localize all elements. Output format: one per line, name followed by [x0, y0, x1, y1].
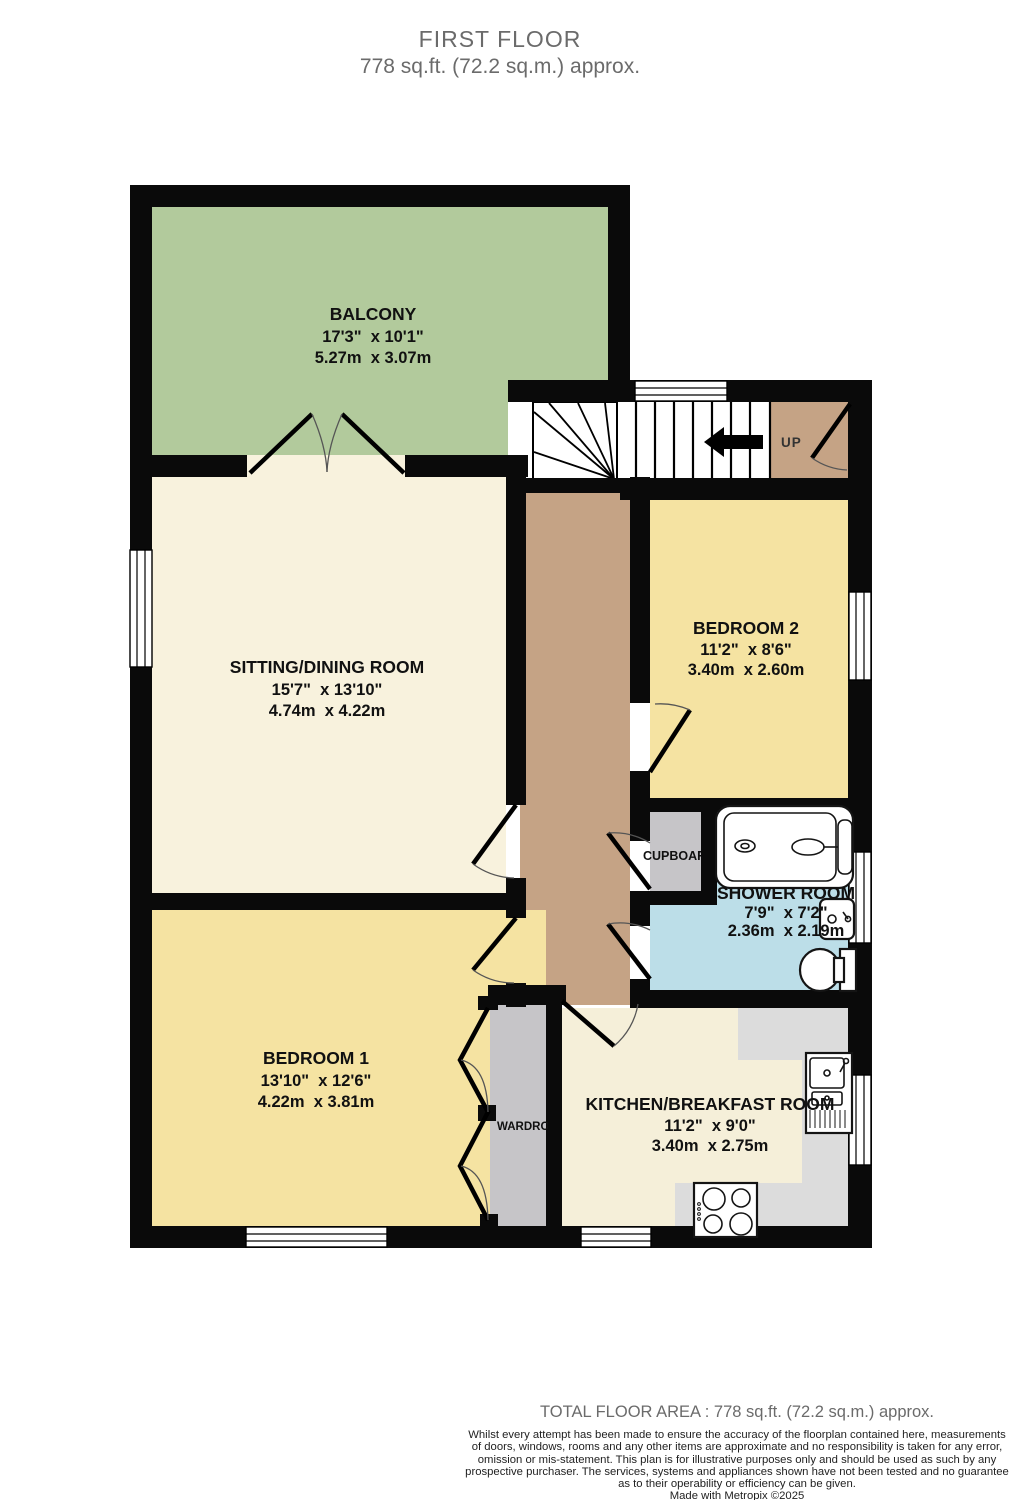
bathtub-icon [716, 806, 853, 888]
page-title: FIRST FLOOR 778 sq.ft. (72.2 sq.m.) appr… [150, 26, 850, 79]
disclaimer-line: omission or mis-statement. This plan is … [437, 1454, 1030, 1466]
window-kitchen-bottom [581, 1227, 651, 1247]
bedroom2-label: BEDROOM 2 [693, 618, 799, 638]
bedroom1-label: BEDROOM 1 [263, 1048, 369, 1068]
cupboard-floor [650, 803, 701, 891]
hob-icon [694, 1183, 757, 1237]
sitting-room-dims-metric: 4.74m x 4.22m [269, 702, 386, 720]
bedroom1-floor [152, 910, 546, 1226]
window-bedroom2-right [849, 592, 871, 680]
kitchen-label: KITCHEN/BREAKFAST ROOM [586, 1094, 835, 1114]
bedroom2-label-group: BEDROOM 2 11'2" x 8'6" 3.40m x 2.60m [688, 618, 805, 679]
footer: TOTAL FLOOR AREA : 778 sq.ft. (72.2 sq.m… [437, 1403, 1030, 1500]
bedroom2-dims-imperial: 11'2" x 8'6" [700, 641, 791, 659]
balcony-label-group: BALCONY 17'3" x 10'1" 5.27m x 3.07m [315, 304, 432, 367]
floorplan-page: FIRST FLOOR 778 sq.ft. (72.2 sq.m.) appr… [0, 0, 1030, 1500]
disclaimer: Whilst every attempt has been made to en… [437, 1429, 1030, 1500]
wardrobe-floor [490, 1003, 546, 1226]
balcony-label: BALCONY [330, 304, 417, 324]
total-floor-area: TOTAL FLOOR AREA : 778 sq.ft. (72.2 sq.m… [437, 1403, 1030, 1422]
bedroom2-dims-metric: 3.40m x 2.60m [688, 661, 805, 679]
room-fills [152, 207, 848, 1226]
balcony-dims-imperial: 17'3" x 10'1" [322, 328, 423, 346]
disclaimer-line: of doors, windows, rooms and any other i… [437, 1441, 1030, 1453]
floorplan-drawing: UP [0, 0, 1030, 1500]
up-label: UP [781, 435, 802, 450]
window-bedroom1-bottom [246, 1227, 387, 1247]
disclaimer-line: Whilst every attempt has been made to en… [437, 1429, 1030, 1441]
toilet-icon [800, 949, 856, 991]
balcony-dims-metric: 5.27m x 3.07m [315, 349, 432, 367]
floor-title: FIRST FLOOR [150, 26, 850, 53]
bedroom1-label-group: BEDROOM 1 13'10" x 12'6" 4.22m x 3.81m [258, 1048, 375, 1111]
disclaimer-line: prospective purchaser. The services, sys… [437, 1466, 1030, 1478]
bedroom1-dims-imperial: 13'10" x 12'6" [261, 1072, 372, 1090]
shower-room-label: SHOWER ROOM [717, 883, 855, 903]
metropix-credit: Made with Metropix ©2025 [437, 1490, 1030, 1500]
kitchen-sink-icon [806, 1053, 852, 1133]
sitting-room-dims-imperial: 15'7" x 13'10" [272, 681, 383, 699]
floor-area-subtitle: 778 sq.ft. (72.2 sq.m.) approx. [150, 55, 850, 79]
kitchen-dims-metric: 3.40m x 2.75m [652, 1137, 769, 1155]
bedroom1-dims-metric: 4.22m x 3.81m [258, 1093, 375, 1111]
window-sitting-left [130, 550, 152, 667]
kitchen-dims-imperial: 11'2" x 9'0" [664, 1117, 755, 1135]
sitting-room-label: SITTING/DINING ROOM [230, 657, 424, 677]
shower-room-dims-imperial: 7'9" x 7'2" [744, 904, 827, 922]
window-stairs-top [635, 381, 727, 401]
disclaimer-line: as to their operability or efficiency ca… [437, 1478, 1030, 1490]
shower-room-dims-metric: 2.36m x 2.19m [728, 922, 845, 940]
